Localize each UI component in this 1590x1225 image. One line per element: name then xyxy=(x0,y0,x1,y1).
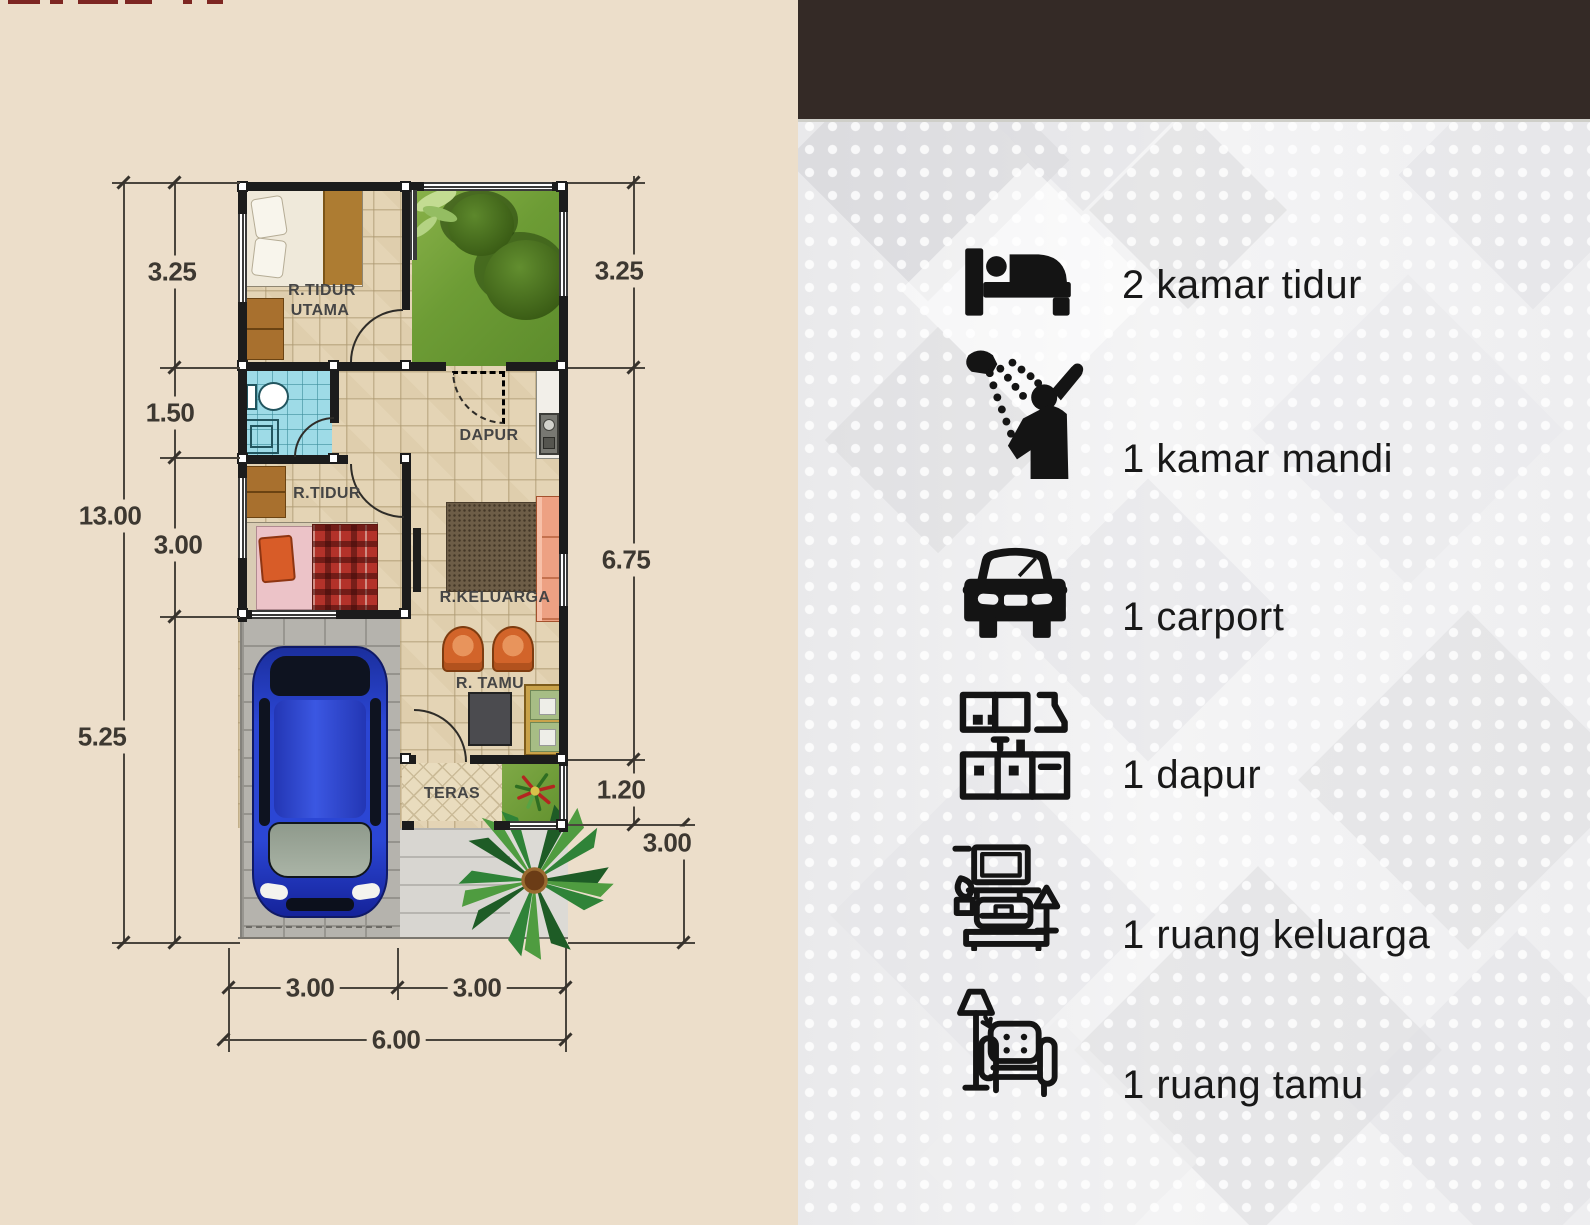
top-edge-fragment xyxy=(50,0,63,4)
wall-junction xyxy=(556,753,567,764)
master-right-wall xyxy=(402,182,410,310)
car-roof xyxy=(274,700,366,818)
feature-label-guestroom: 1 ruang tamu xyxy=(1122,1062,1364,1108)
feature-label-bedrooms: 2 kamar tidur xyxy=(1122,262,1362,308)
room-label-master-2: UTAMA xyxy=(291,302,350,320)
top-edge-fragment xyxy=(125,0,152,4)
flyer-page: R.TIDUR UTAMA DAPUR R.TIDUR R.KELUARGA R… xyxy=(0,0,1590,1225)
wall-master-bottom xyxy=(238,362,412,371)
tv-console xyxy=(413,528,421,592)
wall-junction xyxy=(400,753,411,764)
wall-junction xyxy=(400,453,411,464)
kitchen-icon xyxy=(958,690,1072,804)
room-label-guest: R. TAMU xyxy=(456,675,524,693)
garden-top-window xyxy=(424,182,552,191)
dim-label-left-4: 5.25 xyxy=(73,721,132,754)
bedroom2-left-window xyxy=(238,478,247,558)
feature-label-bathroom: 1 kamar mandi xyxy=(1122,436,1393,482)
livingroom-icon xyxy=(950,843,1068,951)
pillow xyxy=(251,237,287,279)
dim-label-right-3: 1.20 xyxy=(592,774,651,807)
carport-wall-window xyxy=(252,610,336,619)
top-edge-fragment xyxy=(207,0,223,4)
dim-label-left-3: 3.00 xyxy=(149,529,208,562)
top-edge-fragment xyxy=(183,0,192,4)
guest-chair xyxy=(492,626,534,672)
car xyxy=(252,646,388,918)
wardrobe xyxy=(244,298,284,360)
dim-label-bottom-1: 3.00 xyxy=(281,972,340,1005)
car-icon xyxy=(960,545,1070,640)
dim-label-left-1: 3.25 xyxy=(143,256,202,289)
dim-line xyxy=(123,182,125,943)
dim-label-right-4: 3.00 xyxy=(638,827,697,860)
header-bar xyxy=(798,0,1590,122)
garden-left-window xyxy=(410,190,417,260)
flower-plant xyxy=(512,768,558,814)
wall-junction xyxy=(556,181,567,192)
sink-basin xyxy=(543,437,555,449)
room-label-family: R.KELUARGA xyxy=(440,589,551,607)
blanket xyxy=(323,191,362,285)
master-bed xyxy=(246,190,363,287)
top-edge-fragment xyxy=(8,0,40,4)
car-rear-window xyxy=(270,656,370,696)
bed-icon xyxy=(962,246,1074,318)
dim-label-right-2: 6.75 xyxy=(597,544,656,577)
wall-junction xyxy=(556,819,567,830)
car-windshield xyxy=(268,822,372,878)
shower-tray-inner xyxy=(250,425,273,448)
shower-icon xyxy=(956,346,1084,479)
dim-ext xyxy=(568,942,695,944)
terrace-front-wall-a xyxy=(402,821,414,830)
bed2-pillow xyxy=(258,535,296,584)
wall-junction xyxy=(556,360,567,371)
garden-bush xyxy=(484,240,568,320)
bed2-plaid-blanket xyxy=(312,524,378,612)
dim-ext xyxy=(397,948,399,1000)
wall-junction xyxy=(399,608,410,619)
car-side-window xyxy=(259,698,270,826)
garden-area xyxy=(412,188,562,366)
feature-label-carport: 1 carport xyxy=(1122,594,1284,640)
wall-garden-bottom-b xyxy=(506,362,562,371)
family-right-window xyxy=(559,554,568,606)
armchair-icon xyxy=(948,985,1060,1097)
floorplan-panel: R.TIDUR UTAMA DAPUR R.TIDUR R.KELUARGA R… xyxy=(0,0,798,1225)
family-rug xyxy=(446,502,544,592)
carport-dashed-line xyxy=(246,926,392,928)
bathroom-right-wall xyxy=(330,369,339,423)
wall-junction xyxy=(328,360,339,371)
dim-label-left-2: 1.50 xyxy=(141,397,200,430)
room-label-terrace: TERAS xyxy=(424,785,480,803)
wall-junction xyxy=(400,360,411,371)
feature-label-kitchen: 1 dapur xyxy=(1122,752,1261,798)
room-label-kitchen: DAPUR xyxy=(460,427,519,445)
smallgarden-right-window xyxy=(559,766,568,820)
terrace-top-wall-b xyxy=(470,755,568,764)
top-edge-fragment xyxy=(78,0,118,4)
dim-label-bottom-2: 3.00 xyxy=(448,972,507,1005)
bench-pillow xyxy=(539,698,556,715)
wall-junction xyxy=(237,360,248,371)
car-front-grill xyxy=(286,898,354,911)
toilet-bowl xyxy=(258,382,289,411)
dim-label-left-total: 13.00 xyxy=(74,500,147,533)
dim-label-bottom-total: 6.00 xyxy=(367,1024,426,1057)
room-label-master-1: R.TIDUR xyxy=(288,282,356,300)
dresser xyxy=(244,466,286,518)
guest-chair xyxy=(442,626,484,672)
sink-faucet xyxy=(543,419,555,431)
shower-tray xyxy=(244,419,279,454)
dim-label-right-1: 3.25 xyxy=(590,255,649,288)
pillow xyxy=(250,195,288,240)
wall-junction xyxy=(328,453,339,464)
room-label-bedroom2: R.TIDUR xyxy=(293,485,361,503)
master-left-window xyxy=(238,214,247,302)
wall-junction xyxy=(400,181,411,192)
car-side-window xyxy=(370,698,381,826)
terrace-front-wall-b xyxy=(494,821,510,830)
feature-label-familyroom: 1 ruang keluarga xyxy=(1122,912,1430,958)
toilet-tank xyxy=(246,384,257,410)
garden-right-window xyxy=(559,212,568,296)
smallgarden-front-window xyxy=(510,821,560,830)
dim-line xyxy=(174,182,176,943)
bench-pillow xyxy=(539,729,556,746)
coffee-table xyxy=(468,692,512,746)
wall-garden-bottom-a xyxy=(412,362,446,371)
